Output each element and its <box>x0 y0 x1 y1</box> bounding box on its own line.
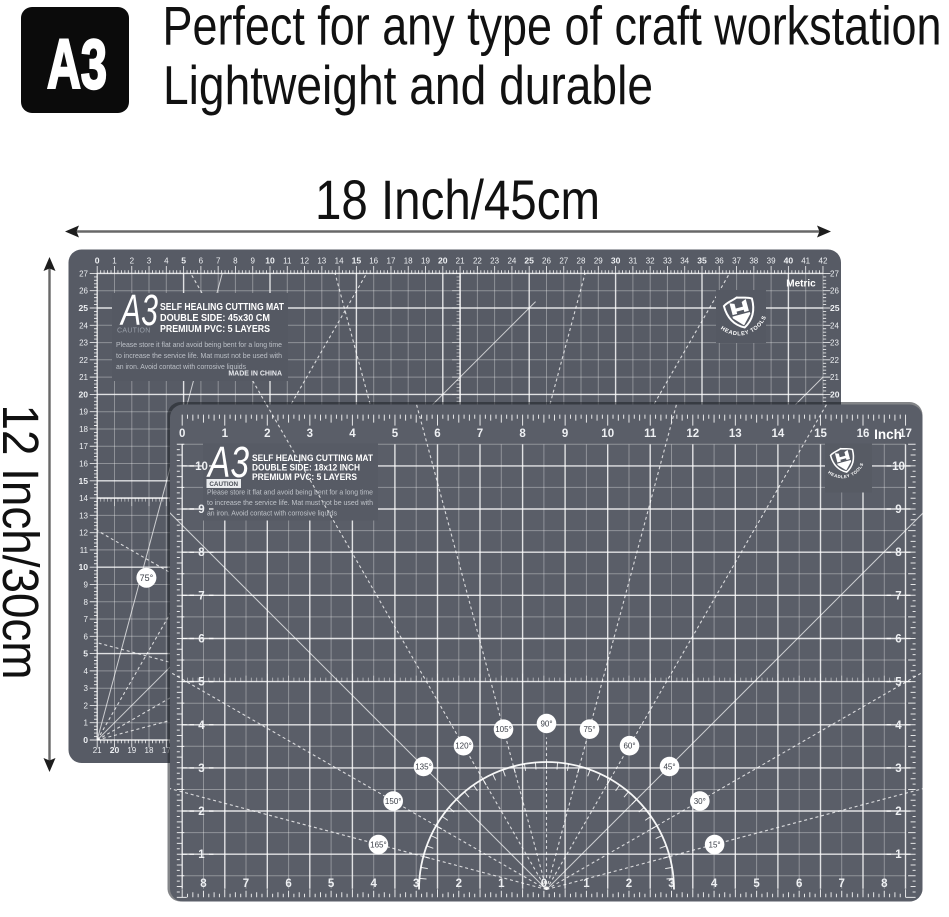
svg-text:6: 6 <box>895 634 901 646</box>
svg-text:35: 35 <box>697 256 707 266</box>
svg-text:4: 4 <box>198 720 205 732</box>
svg-text:to increase the service life.: to increase the service life. Mat must n… <box>116 351 282 360</box>
svg-text:20: 20 <box>78 389 88 399</box>
svg-text:60°: 60° <box>623 742 635 751</box>
svg-text:36: 36 <box>715 257 724 266</box>
svg-text:3: 3 <box>895 763 901 775</box>
svg-text:3: 3 <box>198 763 204 775</box>
svg-text:13: 13 <box>79 511 88 520</box>
svg-text:15: 15 <box>78 476 88 486</box>
svg-text:6: 6 <box>434 428 440 440</box>
svg-text:24: 24 <box>79 321 88 330</box>
svg-text:4: 4 <box>370 878 377 890</box>
svg-text:7: 7 <box>895 590 901 602</box>
svg-text:7: 7 <box>243 878 249 890</box>
svg-text:7: 7 <box>838 878 844 890</box>
svg-text:SELF HEALING CUTTING MAT: SELF HEALING CUTTING MAT <box>160 302 284 313</box>
svg-text:Metric: Metric <box>786 279 816 290</box>
svg-text:27: 27 <box>830 269 839 278</box>
svg-text:37: 37 <box>732 257 741 266</box>
svg-text:11: 11 <box>283 257 292 266</box>
svg-text:165°: 165° <box>370 840 387 849</box>
svg-text:12 Inch/30cm: 12 Inch/30cm <box>0 405 49 680</box>
svg-text:2: 2 <box>198 806 204 818</box>
svg-text:1: 1 <box>895 849 902 861</box>
svg-text:6: 6 <box>796 878 802 890</box>
svg-text:34: 34 <box>680 257 689 266</box>
svg-text:1: 1 <box>498 878 505 890</box>
svg-text:20: 20 <box>438 256 448 266</box>
svg-text:14: 14 <box>335 257 344 266</box>
svg-text:19: 19 <box>79 408 88 417</box>
svg-text:10: 10 <box>265 256 275 266</box>
svg-text:8: 8 <box>233 257 238 266</box>
svg-text:10: 10 <box>195 461 208 473</box>
svg-text:16: 16 <box>857 428 870 440</box>
svg-text:3: 3 <box>147 257 152 266</box>
svg-text:8: 8 <box>895 547 902 559</box>
svg-text:14: 14 <box>772 428 785 440</box>
svg-text:9: 9 <box>895 504 901 516</box>
svg-text:an iron. Avoid contact with co: an iron. Avoid contact with corrosive li… <box>116 362 246 371</box>
svg-text:90°: 90° <box>540 719 552 728</box>
svg-text:27: 27 <box>79 269 88 278</box>
svg-text:15°: 15° <box>709 840 721 849</box>
svg-text:6: 6 <box>199 257 204 266</box>
svg-text:24: 24 <box>830 321 839 330</box>
svg-text:22: 22 <box>79 356 88 365</box>
svg-text:0: 0 <box>95 256 100 266</box>
svg-text:5: 5 <box>181 256 186 266</box>
svg-text:5: 5 <box>83 649 88 659</box>
svg-text:150°: 150° <box>385 797 402 806</box>
svg-text:33: 33 <box>663 257 672 266</box>
svg-text:25: 25 <box>524 256 534 266</box>
svg-text:135°: 135° <box>415 762 432 771</box>
svg-text:8: 8 <box>519 428 526 440</box>
svg-text:7: 7 <box>198 590 204 602</box>
svg-text:5: 5 <box>753 878 760 890</box>
svg-text:DOUBLE SIDE: 45x30 CM: DOUBLE SIDE: 45x30 CM <box>160 313 270 324</box>
svg-text:to increase the service life.: to increase the service life. Mat must n… <box>207 498 373 507</box>
svg-text:7: 7 <box>477 428 483 440</box>
svg-text:an iron. Avoid contact with co: an iron. Avoid contact with corrosive li… <box>207 509 337 518</box>
svg-text:Lightweight and durable: Lightweight and durable <box>163 54 653 116</box>
svg-text:Please store it flat and avoid: Please store it flat and avoid being ben… <box>207 488 373 497</box>
svg-text:0: 0 <box>179 428 185 440</box>
svg-text:5: 5 <box>198 677 205 689</box>
svg-text:16: 16 <box>369 257 378 266</box>
svg-text:16: 16 <box>79 460 88 469</box>
svg-text:6: 6 <box>198 634 204 646</box>
svg-text:40: 40 <box>784 256 794 266</box>
svg-text:8: 8 <box>198 547 205 559</box>
svg-text:13: 13 <box>729 428 742 440</box>
svg-text:5: 5 <box>895 677 902 689</box>
svg-text:0: 0 <box>83 735 88 745</box>
svg-text:9: 9 <box>84 581 89 590</box>
svg-text:4: 4 <box>164 257 169 266</box>
svg-text:PREMIUM PVC: 5 LAYERS: PREMIUM PVC: 5 LAYERS <box>252 472 357 483</box>
svg-text:26: 26 <box>542 257 551 266</box>
svg-text:Please store it flat and avoid: Please store it flat and avoid being ben… <box>116 340 282 349</box>
svg-text:6: 6 <box>84 632 89 641</box>
svg-text:Inch: Inch <box>874 427 902 442</box>
svg-text:8: 8 <box>200 878 207 890</box>
svg-text:32: 32 <box>646 257 655 266</box>
svg-text:4: 4 <box>895 720 902 732</box>
svg-text:41: 41 <box>801 257 810 266</box>
svg-text:18: 18 <box>404 257 413 266</box>
svg-text:2: 2 <box>895 806 901 818</box>
svg-text:75°: 75° <box>583 725 595 734</box>
svg-text:42: 42 <box>819 257 828 266</box>
svg-text:23: 23 <box>79 339 88 348</box>
svg-text:105°: 105° <box>495 725 512 734</box>
svg-text:3: 3 <box>307 428 313 440</box>
svg-text:18 Inch/45cm: 18 Inch/45cm <box>315 168 600 231</box>
svg-text:22: 22 <box>830 356 839 365</box>
svg-text:14: 14 <box>79 494 88 503</box>
svg-text:38: 38 <box>749 257 758 266</box>
svg-text:PREMIUM PVC: 5 LAYERS: PREMIUM PVC: 5 LAYERS <box>160 324 270 335</box>
svg-text:4: 4 <box>349 428 356 440</box>
svg-text:19: 19 <box>421 257 430 266</box>
svg-text:2: 2 <box>84 701 89 710</box>
svg-text:11: 11 <box>80 546 89 555</box>
svg-text:1: 1 <box>112 257 117 266</box>
svg-text:39: 39 <box>767 257 776 266</box>
svg-text:1: 1 <box>198 849 205 861</box>
svg-text:CAUTION: CAUTION <box>117 328 151 335</box>
svg-text:21: 21 <box>830 373 839 382</box>
svg-text:75°: 75° <box>140 573 154 583</box>
svg-text:12: 12 <box>79 529 88 538</box>
svg-text:2: 2 <box>130 257 135 266</box>
svg-text:23: 23 <box>830 339 839 348</box>
svg-text:8: 8 <box>881 878 888 890</box>
svg-text:4: 4 <box>84 667 89 676</box>
svg-text:9: 9 <box>562 428 568 440</box>
svg-text:10: 10 <box>601 428 614 440</box>
svg-text:28: 28 <box>577 257 586 266</box>
svg-text:27: 27 <box>559 257 568 266</box>
svg-text:2: 2 <box>456 878 462 890</box>
svg-text:26: 26 <box>79 287 88 296</box>
svg-text:1: 1 <box>583 878 590 890</box>
svg-text:29: 29 <box>594 257 603 266</box>
svg-text:17: 17 <box>79 442 88 451</box>
svg-text:12: 12 <box>300 257 309 266</box>
svg-text:22: 22 <box>473 257 482 266</box>
svg-text:8: 8 <box>84 598 89 607</box>
svg-text:18: 18 <box>79 425 88 434</box>
svg-text:25: 25 <box>78 303 88 313</box>
svg-text:31: 31 <box>628 257 637 266</box>
svg-text:3: 3 <box>84 684 89 693</box>
svg-text:25: 25 <box>830 303 840 313</box>
svg-text:30: 30 <box>611 256 621 266</box>
svg-text:24: 24 <box>507 257 516 266</box>
svg-text:MADE IN CHINA: MADE IN CHINA <box>228 371 282 378</box>
svg-text:7: 7 <box>216 257 221 266</box>
svg-text:2: 2 <box>264 428 270 440</box>
svg-text:4: 4 <box>711 878 718 890</box>
svg-text:21: 21 <box>456 257 465 266</box>
svg-text:A3: A3 <box>47 25 107 103</box>
svg-text:9: 9 <box>250 257 255 266</box>
svg-text:21: 21 <box>79 373 88 382</box>
svg-text:10: 10 <box>892 461 905 473</box>
svg-text:5: 5 <box>392 428 399 440</box>
svg-text:11: 11 <box>644 428 657 440</box>
svg-text:15: 15 <box>814 428 827 440</box>
svg-text:120°: 120° <box>455 742 472 751</box>
svg-text:26: 26 <box>830 287 839 296</box>
svg-text:20: 20 <box>830 389 840 399</box>
svg-text:5: 5 <box>328 878 335 890</box>
svg-text:7: 7 <box>84 615 89 624</box>
svg-text:17: 17 <box>387 257 396 266</box>
svg-text:45°: 45° <box>663 762 675 771</box>
svg-text:12: 12 <box>686 428 699 440</box>
svg-text:1: 1 <box>84 719 89 728</box>
svg-text:13: 13 <box>317 257 326 266</box>
svg-text:9: 9 <box>198 504 204 516</box>
svg-text:Perfect for any type of craft: Perfect for any type of craft workstatio… <box>163 0 942 57</box>
svg-text:10: 10 <box>78 562 88 572</box>
svg-text:6: 6 <box>285 878 291 890</box>
svg-text:15: 15 <box>352 256 362 266</box>
svg-text:23: 23 <box>490 257 499 266</box>
svg-text:2: 2 <box>626 878 632 890</box>
svg-text:30°: 30° <box>694 797 706 806</box>
